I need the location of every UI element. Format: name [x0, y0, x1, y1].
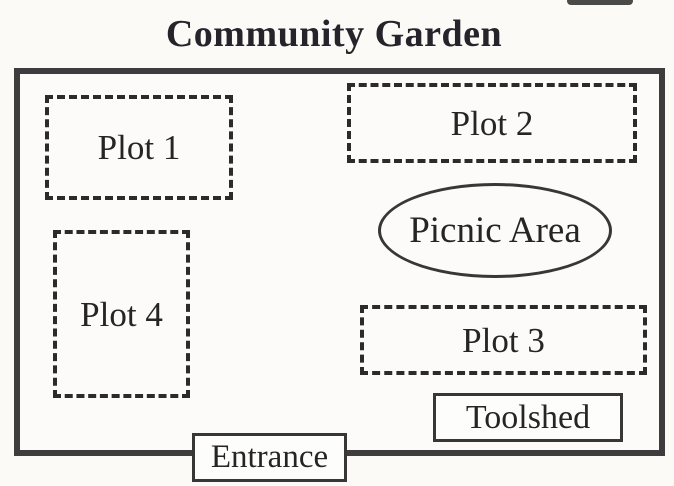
entrance-label: Entrance	[211, 441, 328, 474]
area-entrance: Entrance	[192, 433, 347, 482]
area-picnic: Picnic Area	[378, 183, 612, 278]
area-plot-1: Plot 1	[45, 95, 233, 200]
plot-2-label: Plot 2	[451, 106, 534, 141]
area-toolshed: Toolshed	[433, 393, 623, 442]
toolshed-label: Toolshed	[466, 401, 590, 435]
scan-artifact	[567, 0, 633, 5]
plot-4-label: Plot 4	[80, 297, 163, 332]
plot-1-label: Plot 1	[98, 130, 181, 165]
area-plot-2: Plot 2	[347, 83, 637, 163]
figure-title: Community Garden	[0, 12, 668, 56]
picnic-area-label: Picnic Area	[409, 212, 581, 249]
plot-3-label: Plot 3	[462, 323, 545, 358]
area-plot-4: Plot 4	[53, 230, 190, 398]
area-plot-3: Plot 3	[360, 305, 647, 375]
community-garden-figure: Community Garden Plot 1 Plot 2 Picnic Ar…	[0, 0, 674, 486]
